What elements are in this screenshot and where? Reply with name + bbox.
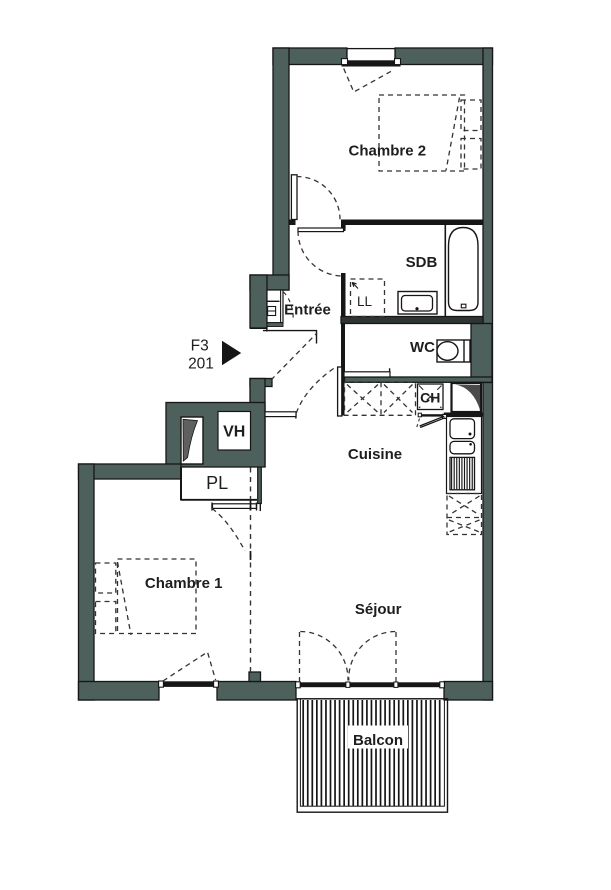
svg-text:PL: PL	[206, 473, 228, 493]
svg-text:F3: F3	[191, 338, 209, 355]
svg-text:SDB: SDB	[406, 254, 438, 271]
svg-text:Cuisine: Cuisine	[348, 446, 402, 463]
svg-text:CH: CH	[420, 390, 440, 406]
svg-text:Entrée: Entrée	[284, 302, 331, 319]
svg-text:LL: LL	[357, 294, 373, 309]
svg-text:Balcon: Balcon	[353, 732, 403, 749]
svg-text:VH: VH	[223, 424, 245, 441]
svg-text:WC: WC	[410, 339, 435, 356]
svg-text:Chambre 1: Chambre 1	[145, 575, 223, 592]
svg-text:Séjour: Séjour	[355, 601, 402, 618]
svg-text:201: 201	[188, 356, 214, 373]
svg-text:Chambre 2: Chambre 2	[349, 143, 427, 160]
